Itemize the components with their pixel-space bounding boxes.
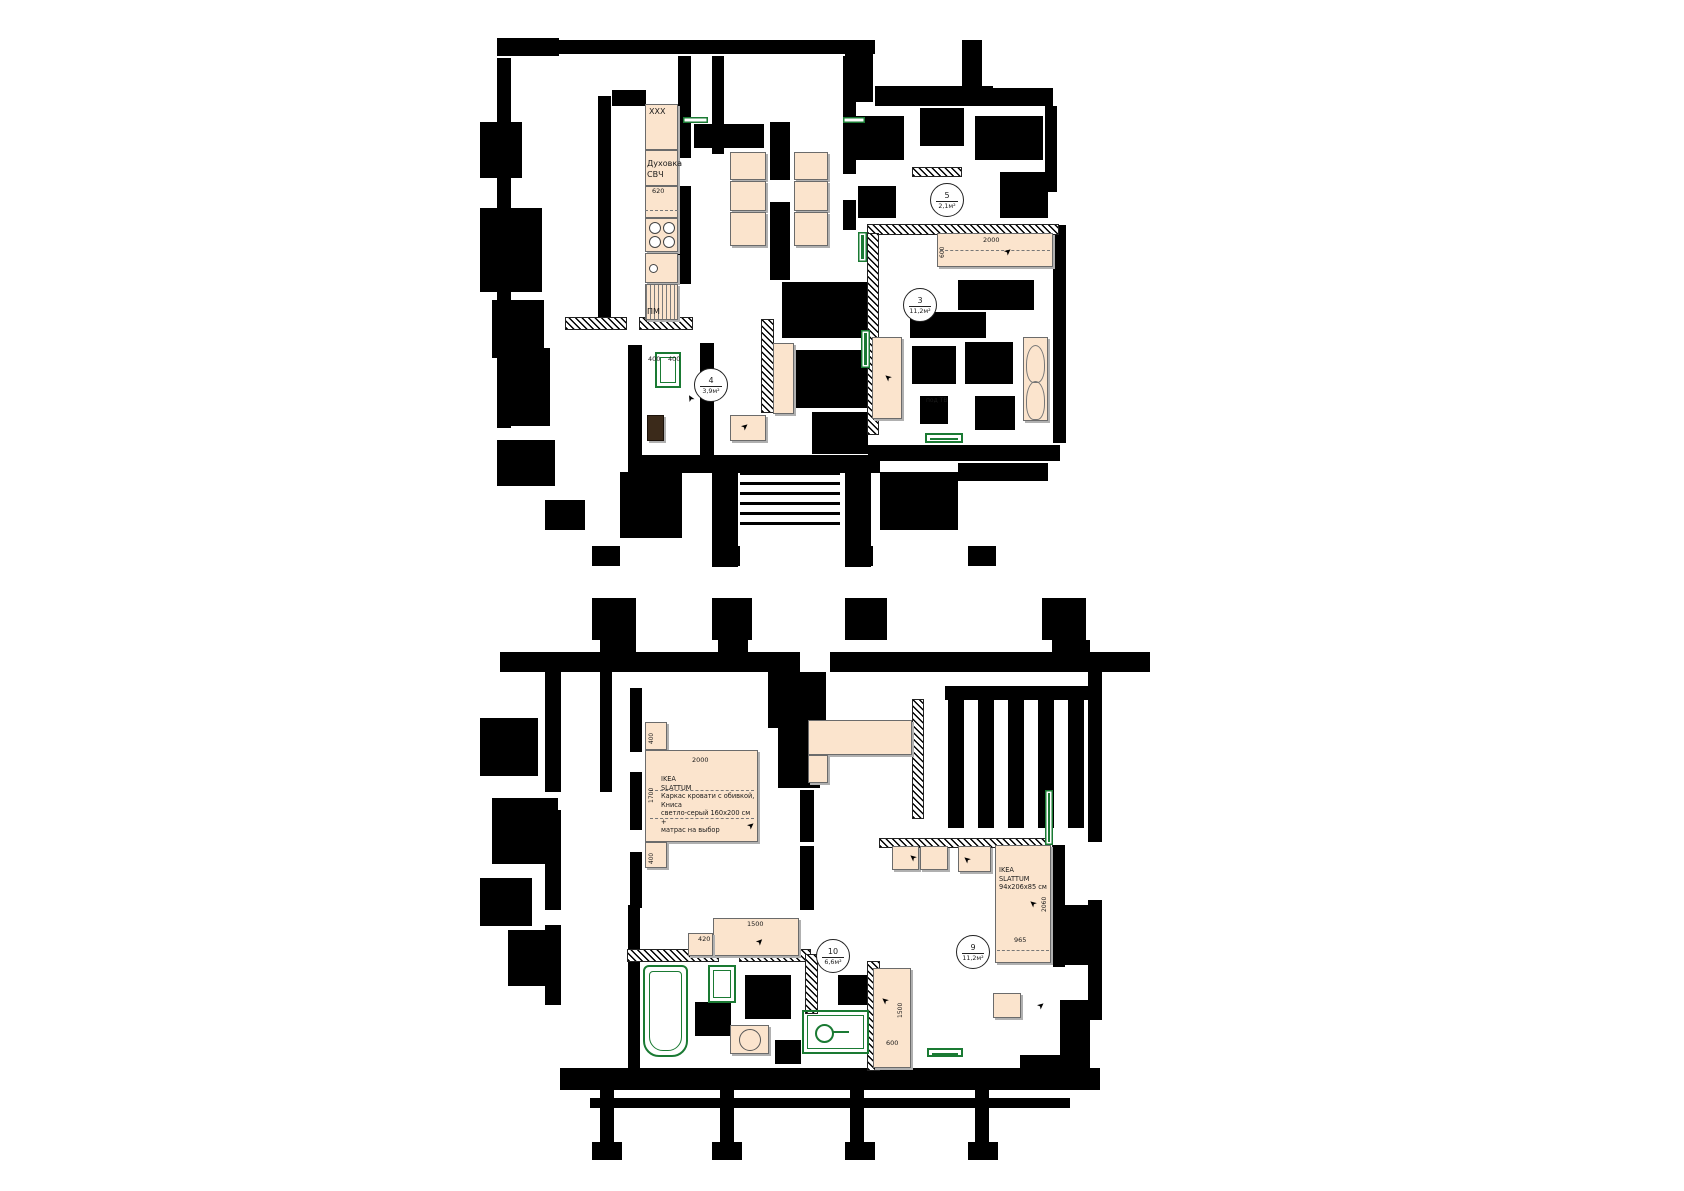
toilet-sink-icon <box>815 1024 834 1043</box>
kitchen-stove <box>645 218 678 252</box>
dim-label: 400 <box>668 356 680 363</box>
furniture-note: IKEASLATTUM94x206x85 см <box>999 866 1051 892</box>
dim-label: 620 <box>652 188 664 195</box>
room-area: 11,2м² <box>962 954 983 962</box>
dim-label: СВЧ <box>647 171 664 179</box>
kitchen-sink <box>645 253 678 283</box>
wall-segment <box>993 88 1053 106</box>
wall-segment <box>770 122 790 180</box>
wall-segment <box>678 186 691 284</box>
wall-segment <box>480 122 522 178</box>
wall-segment <box>968 1142 998 1160</box>
wall-segment <box>745 975 791 1019</box>
room9-cabinet <box>920 846 948 870</box>
wall-segment <box>958 280 1034 310</box>
wall-segment <box>508 930 556 986</box>
dining-table-seat <box>730 152 766 180</box>
wall-segment <box>695 1002 731 1036</box>
wall-segment <box>1052 640 1090 654</box>
wall-segment <box>480 718 538 776</box>
note-line: SLATTUM <box>661 784 756 793</box>
wall-segment <box>858 186 896 218</box>
wall-segment <box>678 56 691 104</box>
wall-segment <box>800 846 814 910</box>
wall-segment <box>978 700 994 828</box>
toilet-zone <box>802 1010 869 1054</box>
dashed-line <box>645 210 678 211</box>
wall-segment <box>830 652 1150 672</box>
tv-stand-inner <box>930 438 958 440</box>
wall-segment <box>868 445 1060 461</box>
radiator <box>683 117 708 123</box>
wall-segment <box>497 440 555 486</box>
wall-segment <box>965 342 1013 384</box>
dim-label: 2000 <box>692 757 709 764</box>
wall-segment <box>628 905 640 950</box>
washing-machine <box>730 1025 769 1054</box>
room-area: 2,1м² <box>938 202 955 210</box>
armchair-room3 <box>1023 337 1048 421</box>
wall-segment <box>480 208 542 292</box>
wall-segment <box>845 546 873 566</box>
dim-label: 1500 <box>747 921 764 928</box>
dim-label: 600 <box>940 247 946 258</box>
hatched-wall <box>913 168 961 176</box>
stove-burners <box>648 221 675 249</box>
bathtub-inner <box>649 971 682 1051</box>
wall-segment <box>720 1090 734 1142</box>
radiator <box>843 117 865 123</box>
wall-segment <box>492 798 558 864</box>
sink-basin-icon <box>649 264 658 273</box>
wall-segment <box>1068 700 1084 828</box>
room-number: 10 <box>822 947 844 958</box>
wall-segment <box>1000 172 1048 218</box>
wall-segment <box>712 546 740 566</box>
dim-label: 1500 <box>898 1003 904 1018</box>
floor-plan-canvas: XXX XXXДуховкаСВЧ620ПМ4004002000600под Т… <box>0 0 1684 1191</box>
wall-segment <box>962 40 982 88</box>
dashed-line <box>940 250 1050 251</box>
dim-label: 965 <box>1014 937 1026 944</box>
room-number: 3 <box>909 296 931 307</box>
room-area: 6,6м² <box>824 958 841 966</box>
wall-segment <box>843 200 856 230</box>
note-line: светло-серый 160x200 см + <box>661 809 756 826</box>
wall-segment <box>1088 672 1102 842</box>
wall-segment <box>678 100 691 158</box>
dining-table-seat <box>730 181 766 211</box>
dim-label: XXX <box>649 108 665 116</box>
wall-segment <box>800 790 814 842</box>
wall-segment <box>694 124 764 148</box>
wall-segment <box>630 772 642 830</box>
wall-segment <box>557 40 875 54</box>
wall-segment <box>945 686 1095 700</box>
green-bench <box>927 1048 963 1057</box>
wall-segment <box>718 640 748 654</box>
wall-segment <box>958 463 1048 481</box>
room-marker-4: 43,9м² <box>694 368 728 402</box>
wall-segment <box>630 688 642 752</box>
room-marker-3: 311,2м² <box>903 288 937 322</box>
hall-shoe-cabinet <box>647 415 664 441</box>
note-line: матрас на выбор <box>661 826 756 835</box>
wall-segment <box>628 455 880 473</box>
dim-label: ПМ <box>647 308 660 316</box>
wall-segment <box>850 1090 864 1142</box>
wall-segment <box>845 598 887 640</box>
dashed-line <box>997 950 1049 951</box>
radiator <box>858 232 867 262</box>
room-number: 9 <box>962 943 984 954</box>
wall-segment <box>1053 225 1066 443</box>
staircase <box>740 472 840 530</box>
wall-segment <box>712 1142 742 1160</box>
wall-segment <box>560 1068 1100 1090</box>
wall-segment <box>600 1090 614 1142</box>
note-line: Каркас кровати с обивкой, Книса <box>661 792 756 809</box>
wall-segment <box>875 86 993 106</box>
radiator <box>861 330 870 368</box>
note-line: IKEA <box>661 775 756 784</box>
room-number: 5 <box>936 191 958 202</box>
wall-segment <box>700 343 714 461</box>
hatched-wall <box>806 955 817 1013</box>
room-marker-9: 911,2м² <box>956 935 990 969</box>
wall-segment <box>845 1142 875 1160</box>
wall-segment <box>948 700 964 828</box>
room-marker-5: 52,1м² <box>930 183 964 217</box>
wall-segment <box>620 472 682 538</box>
bathtub <box>643 965 688 1057</box>
nightstand-room9 <box>993 993 1021 1018</box>
dim-label: под ТВ <box>926 398 947 404</box>
corner-sofa-top <box>808 720 912 755</box>
wall-segment <box>600 672 612 792</box>
wall-segment <box>506 348 550 426</box>
wall-segment <box>782 282 868 338</box>
cushion-arc <box>1026 381 1045 420</box>
hatched-wall <box>762 320 773 412</box>
wall-segment <box>770 202 790 280</box>
wall-segment <box>592 546 620 566</box>
dim-label: 400 <box>649 733 655 744</box>
wall-segment <box>497 38 559 56</box>
wall-segment <box>975 116 1043 160</box>
furniture-note: IKEASLATTUMКаркас кровати с обивкой, Кни… <box>661 775 756 835</box>
wall-segment <box>1053 845 1065 967</box>
wall-segment <box>712 598 752 640</box>
dim-label: 1700 <box>649 788 655 803</box>
green-bench-inner <box>932 1053 958 1055</box>
cushion-arc <box>1026 345 1045 384</box>
corner-sofa-side <box>808 755 828 783</box>
toilet-icon <box>833 1031 849 1034</box>
room-area: 11,2м² <box>909 307 930 315</box>
room-marker-10: 106,6м² <box>816 939 850 973</box>
hall-wardrobe <box>773 343 794 414</box>
wall-segment <box>812 412 868 454</box>
wall-segment <box>590 1098 1070 1108</box>
wall-segment <box>628 960 640 1070</box>
wall-segment <box>912 346 956 384</box>
washer-drum-icon <box>739 1029 761 1051</box>
note-line: SLATTUM <box>999 875 1051 884</box>
bath-sink <box>708 965 736 1003</box>
dim-label: 400 <box>649 853 655 864</box>
wall-segment <box>975 1090 989 1142</box>
wall-segment <box>480 878 532 926</box>
wall-segment <box>1042 598 1086 640</box>
wall-segment <box>545 500 585 530</box>
wall-segment <box>592 598 636 640</box>
note-line: IKEA <box>999 866 1051 875</box>
wall-segment <box>1060 1000 1090 1060</box>
dim-label: 2060 <box>1042 897 1048 912</box>
wall-segment <box>612 90 646 106</box>
tv-stand <box>925 433 963 443</box>
bath-sink-inner <box>713 970 731 998</box>
dim-label: 2000 <box>983 237 1000 244</box>
hatched-wall <box>913 700 923 818</box>
pointer-arrow: ➤ <box>1036 1001 1048 1013</box>
wall-segment <box>600 640 636 654</box>
wall-segment <box>795 350 869 408</box>
note-line: 94x206x85 см <box>999 883 1051 892</box>
wall-segment <box>975 396 1015 430</box>
wall-segment <box>630 852 642 908</box>
dim-label: 400 <box>648 356 660 363</box>
dim-label: Духовка <box>647 160 682 168</box>
dim-label: 600 <box>886 1040 898 1047</box>
dining-table-seat <box>730 212 766 246</box>
wall-segment <box>628 345 642 457</box>
dining-table-seat <box>794 181 828 211</box>
room-area: 3,9м² <box>702 387 719 395</box>
wall-segment <box>880 472 958 530</box>
wall-segment <box>500 652 800 672</box>
dining-table-seat <box>794 152 828 180</box>
hatched-wall <box>566 318 626 329</box>
dim-label: 420 <box>698 936 710 943</box>
room-number: 4 <box>700 376 722 387</box>
dining-table-seat <box>794 212 828 246</box>
wall-segment <box>1008 700 1024 828</box>
wall-segment <box>598 96 611 328</box>
radiator <box>1045 790 1053 845</box>
wall-segment <box>775 1040 801 1064</box>
wall-segment <box>920 108 964 146</box>
wall-segment <box>545 672 561 792</box>
wardrobe-room10 <box>873 968 911 1068</box>
wall-segment <box>968 546 996 566</box>
wall-segment <box>592 1142 622 1160</box>
